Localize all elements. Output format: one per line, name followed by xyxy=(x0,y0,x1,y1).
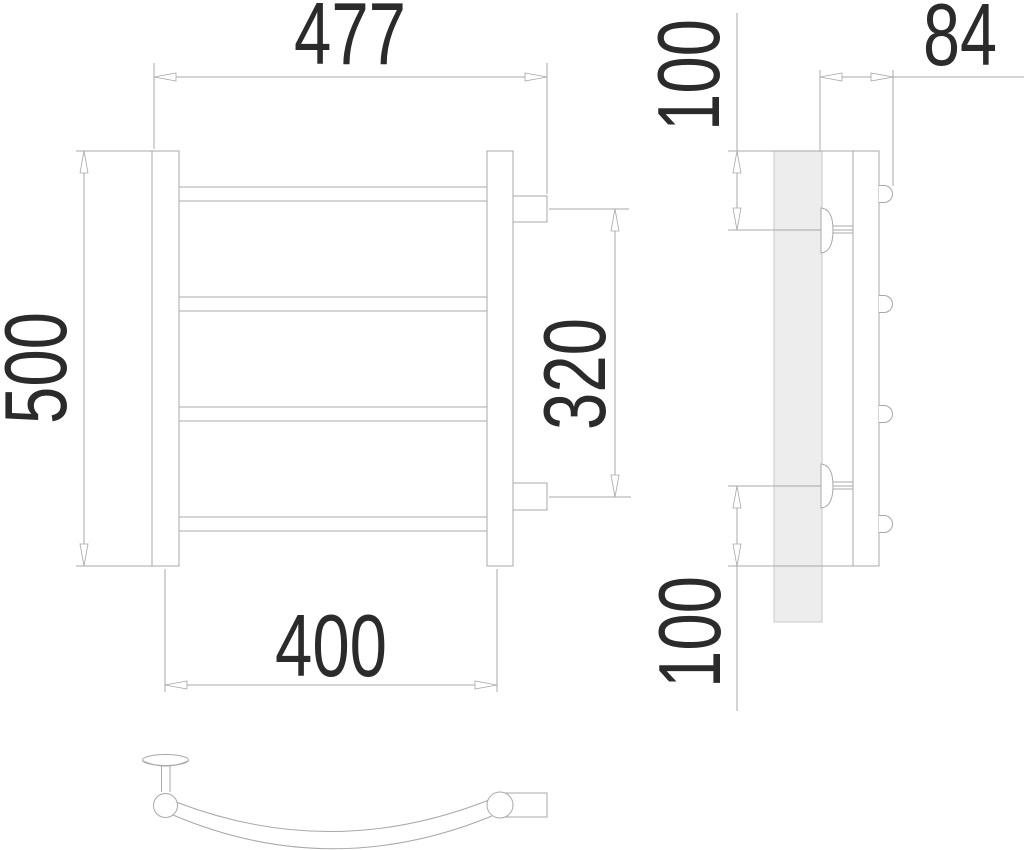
arrowhead-down xyxy=(733,208,741,230)
arrowhead-left xyxy=(820,73,842,81)
bracket-stem xyxy=(162,765,171,792)
dim-label-84: 84 xyxy=(923,0,997,84)
wall-plate xyxy=(774,151,822,622)
side-pipe-ends xyxy=(879,186,893,533)
plan-view xyxy=(143,755,548,849)
dim-label-400: 400 xyxy=(275,596,387,695)
plan-right-tube-end xyxy=(487,792,513,818)
dim-stand-spacing: 400 xyxy=(165,569,497,695)
side-view: 84 100 100 xyxy=(639,0,1024,711)
bracket-flange xyxy=(821,208,833,253)
towel-rail-technical-drawing: 477 500 320 400 xyxy=(0,0,1024,850)
plan-wall-bracket xyxy=(143,755,189,793)
arrowhead-up xyxy=(80,151,88,173)
rail-tube xyxy=(179,187,487,201)
pipe-end xyxy=(879,186,893,203)
drawing-canvas: 477 500 320 400 xyxy=(0,0,1024,850)
arrowhead-right xyxy=(871,73,893,81)
dim-label-100-top: 100 xyxy=(639,19,738,131)
collector-tube xyxy=(853,151,879,566)
pipe-end xyxy=(879,406,893,423)
arrowhead-up xyxy=(611,209,619,231)
arrowhead-up xyxy=(733,486,741,508)
connection-stub-bottom xyxy=(513,483,547,510)
rail-tube xyxy=(179,517,487,531)
dim-port-spacing: 320 xyxy=(525,209,631,497)
front-view: 477 500 320 400 xyxy=(0,0,631,695)
connection-stub-top xyxy=(513,196,547,222)
plan-left-tube-end xyxy=(154,794,178,818)
arrowhead-down xyxy=(733,544,741,566)
rail-tube xyxy=(179,407,487,421)
pipe-end xyxy=(879,296,893,313)
dim-overall-height: 500 xyxy=(0,151,152,566)
dim-depth: 84 xyxy=(820,0,1024,186)
front-rails xyxy=(179,187,487,531)
rail-tube xyxy=(179,297,487,311)
dim-label-500: 500 xyxy=(0,312,85,424)
arrowhead-right xyxy=(475,681,497,689)
dim-label-477: 477 xyxy=(294,0,406,83)
arrowhead-left xyxy=(154,73,176,81)
arrowhead-right xyxy=(525,73,547,81)
left-stand xyxy=(152,151,179,566)
arrowhead-down xyxy=(611,475,619,497)
pipe-end xyxy=(879,516,893,533)
arrowhead-up xyxy=(733,151,741,173)
curved-rail-upper-edge xyxy=(176,800,489,832)
dim-label-100-bottom: 100 xyxy=(640,576,739,688)
arrowhead-left xyxy=(165,681,187,689)
right-stand xyxy=(487,151,513,566)
dim-label-320: 320 xyxy=(525,318,624,430)
arrowhead-down xyxy=(80,544,88,566)
bracket-flange xyxy=(821,464,833,508)
